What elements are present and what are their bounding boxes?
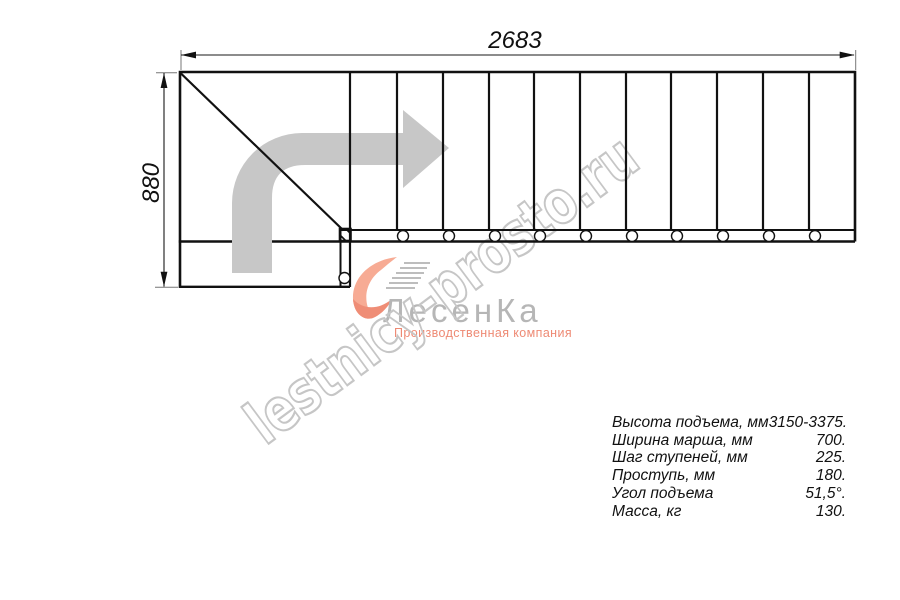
spec-value: 225. <box>816 449 846 467</box>
spec-label: Высота подъема, мм <box>612 414 769 432</box>
spec-value: 130. <box>816 503 846 521</box>
spec-value: 180. <box>816 467 846 485</box>
stair-drawing-page: ЛесенКа Производственная компания lestni… <box>0 0 900 600</box>
spec-row: Угол подъема 51,5°. <box>612 485 846 503</box>
spec-table: Высота подъема, мм 3150-3375. Ширина мар… <box>612 414 846 520</box>
spec-row: Высота подъема, мм 3150-3375. <box>612 414 846 432</box>
spec-row: Ширина марша, мм 700. <box>612 432 846 450</box>
spec-row: Проступь, мм 180. <box>612 467 846 485</box>
spec-row: Шаг ступеней, мм 225. <box>612 449 846 467</box>
dimension-height-label: 880 <box>138 162 165 203</box>
spec-label: Шаг ступеней, мм <box>612 449 748 467</box>
spec-row: Масса, кг 130. <box>612 503 846 521</box>
spec-value: 3150-3375. <box>769 414 847 432</box>
dimension-width-label: 2683 <box>487 27 542 54</box>
spec-value: 51,5°. <box>805 485 846 503</box>
spec-value: 700. <box>816 432 846 450</box>
spec-label: Масса, кг <box>612 503 681 521</box>
spec-label: Угол подъема <box>612 485 713 503</box>
spec-label: Проступь, мм <box>612 467 715 485</box>
spec-label: Ширина марша, мм <box>612 432 753 450</box>
dimension-height: 880 <box>138 73 178 287</box>
dimension-width: 2683 <box>181 27 856 70</box>
